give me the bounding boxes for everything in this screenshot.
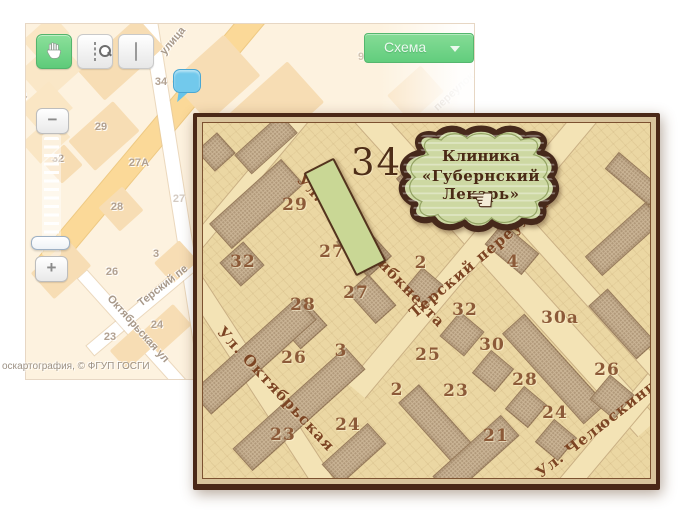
house-number: 3 [335, 341, 348, 361]
house-number: 34 [155, 76, 167, 88]
house-number: 32 [230, 252, 256, 272]
house-number: 29 [282, 195, 308, 215]
copyright-text: оскартография, © ФГУП ГОСГИ [2, 361, 150, 372]
chevron-down-icon [450, 46, 460, 52]
building-shape [605, 152, 651, 206]
house-number: 26 [281, 348, 307, 368]
house-number: 23 [270, 425, 296, 445]
house-number: 30 [479, 335, 505, 355]
house-number: 24 [335, 415, 361, 435]
vintage-map: Ул. Карла Либкнехта Терский переулок Ул.… [202, 122, 651, 479]
house-number: 25 [415, 345, 441, 365]
house-number: 4 [25, 90, 27, 102]
building-shape [472, 350, 514, 392]
pointing-hand-icon: ☚ [386, 183, 576, 218]
magnifier-select-icon [94, 43, 96, 61]
house-number: 28 [111, 201, 123, 213]
building-shape [505, 386, 547, 428]
house-number: 28 [512, 370, 538, 390]
house-number: 23 [443, 381, 469, 401]
building-shape [202, 132, 236, 172]
building-shape [588, 289, 651, 360]
map-application: улица переулок Терский пе Октябрьская ул… [0, 0, 692, 516]
ruler-tool-button[interactable] [118, 34, 154, 69]
house-number: 24 [151, 319, 163, 331]
house-number: 3 [153, 248, 159, 260]
street-label: улица [158, 25, 188, 58]
zoom-select-tool-button[interactable] [77, 34, 113, 69]
building-shape [585, 202, 651, 276]
hand-icon [44, 39, 64, 64]
zoom-out-button[interactable]: − [36, 108, 69, 134]
house-number: 29 [95, 121, 107, 133]
house-number: 2 [415, 253, 428, 273]
house-number: 32 [452, 300, 478, 320]
house-number: 26 [594, 360, 620, 380]
map-type-label: Схема [384, 39, 426, 55]
house-number: 24 [542, 403, 568, 423]
house-number: 27 [343, 283, 369, 303]
clinic-badge-title: Клиника [386, 147, 576, 165]
house-number: 27А [129, 157, 149, 169]
card-inner-frame: Ул. Карла Либкнехта Терский переулок Ул.… [197, 117, 656, 484]
pan-tool-button[interactable] [36, 34, 72, 69]
clinic-map-card: Ул. Карла Либкнехта Терский переулок Ул.… [193, 113, 660, 490]
house-number: 21 [483, 426, 509, 446]
house-number: 23 [104, 331, 116, 343]
house-number: 26 [106, 266, 118, 278]
house-number: 4 [507, 252, 520, 272]
house-number: 27 [173, 193, 185, 205]
ruler-icon [135, 43, 137, 61]
house-number: 28 [290, 295, 316, 315]
zoom-slider-thumb[interactable] [31, 236, 70, 250]
map-pin-body [173, 69, 201, 93]
zoom-in-button[interactable]: + [35, 256, 68, 282]
map-pin-icon[interactable] [173, 69, 200, 109]
clinic-badge[interactable]: Клиника «Губернский Лекарь» ☚ [386, 125, 576, 233]
map-type-button[interactable]: Схема [364, 33, 474, 63]
house-number: 2 [391, 380, 404, 400]
house-number: 30а [541, 308, 579, 328]
